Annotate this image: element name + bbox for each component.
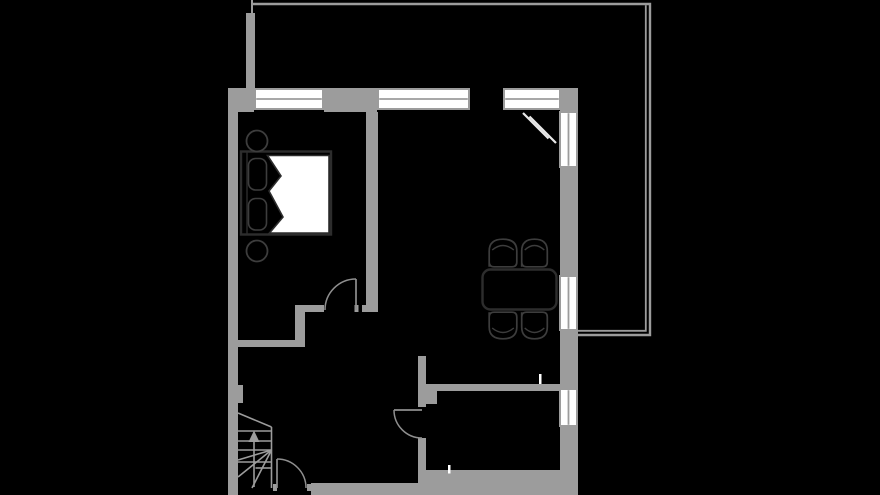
door-bathroom-swing-arc bbox=[394, 410, 422, 438]
wall-bath-top bbox=[426, 384, 560, 391]
wall-entry-doorstop-right bbox=[307, 484, 311, 491]
dining-table bbox=[483, 270, 557, 310]
wall-divider-foot bbox=[362, 305, 378, 312]
wall-left-pier bbox=[238, 385, 243, 403]
wall-bath-pier bbox=[426, 391, 437, 404]
floor-plan bbox=[0, 0, 880, 495]
wall-bedroom-south-lower bbox=[238, 340, 305, 347]
wall-bottom-entry bbox=[311, 483, 418, 495]
wall-right-seg1 bbox=[560, 168, 578, 275]
bedside-stool-bottom bbox=[247, 241, 268, 262]
chair-bottom-right bbox=[522, 312, 548, 339]
balcony-door-open-leaf-line-0 bbox=[523, 113, 549, 139]
wall-bottom-bath bbox=[418, 470, 578, 495]
balcony-door-open-leaf-line-1 bbox=[530, 117, 557, 144]
door-entry-swing-arc bbox=[277, 459, 306, 488]
pillow-0 bbox=[249, 159, 267, 191]
chair-top-right bbox=[522, 239, 548, 267]
vent-tick-bath bbox=[448, 465, 451, 474]
wall-bedroom-south-upper bbox=[304, 305, 324, 312]
stair-line-0 bbox=[238, 413, 272, 427]
wall-balcony-stub bbox=[246, 13, 255, 88]
vent-tick-dining bbox=[539, 374, 542, 384]
stairs-up-arrow-icon bbox=[249, 431, 260, 443]
wall-left bbox=[228, 88, 238, 495]
balcony-outline-inner bbox=[578, 5, 646, 331]
pillow-1 bbox=[249, 199, 267, 231]
floor-plan-screenshot bbox=[0, 0, 880, 495]
wall-right-seg2 bbox=[560, 331, 578, 388]
door-bedroom-swing-arc bbox=[325, 279, 356, 310]
chair-bottom-left bbox=[489, 312, 517, 339]
wall-top-right-corner bbox=[560, 88, 578, 111]
wall-top-mid bbox=[324, 88, 377, 112]
bedside-stool-top bbox=[247, 131, 268, 152]
wall-bedroom-living-divider bbox=[366, 112, 378, 305]
wall-bath-stub-upper bbox=[418, 356, 426, 407]
chair-top-left bbox=[489, 239, 517, 267]
